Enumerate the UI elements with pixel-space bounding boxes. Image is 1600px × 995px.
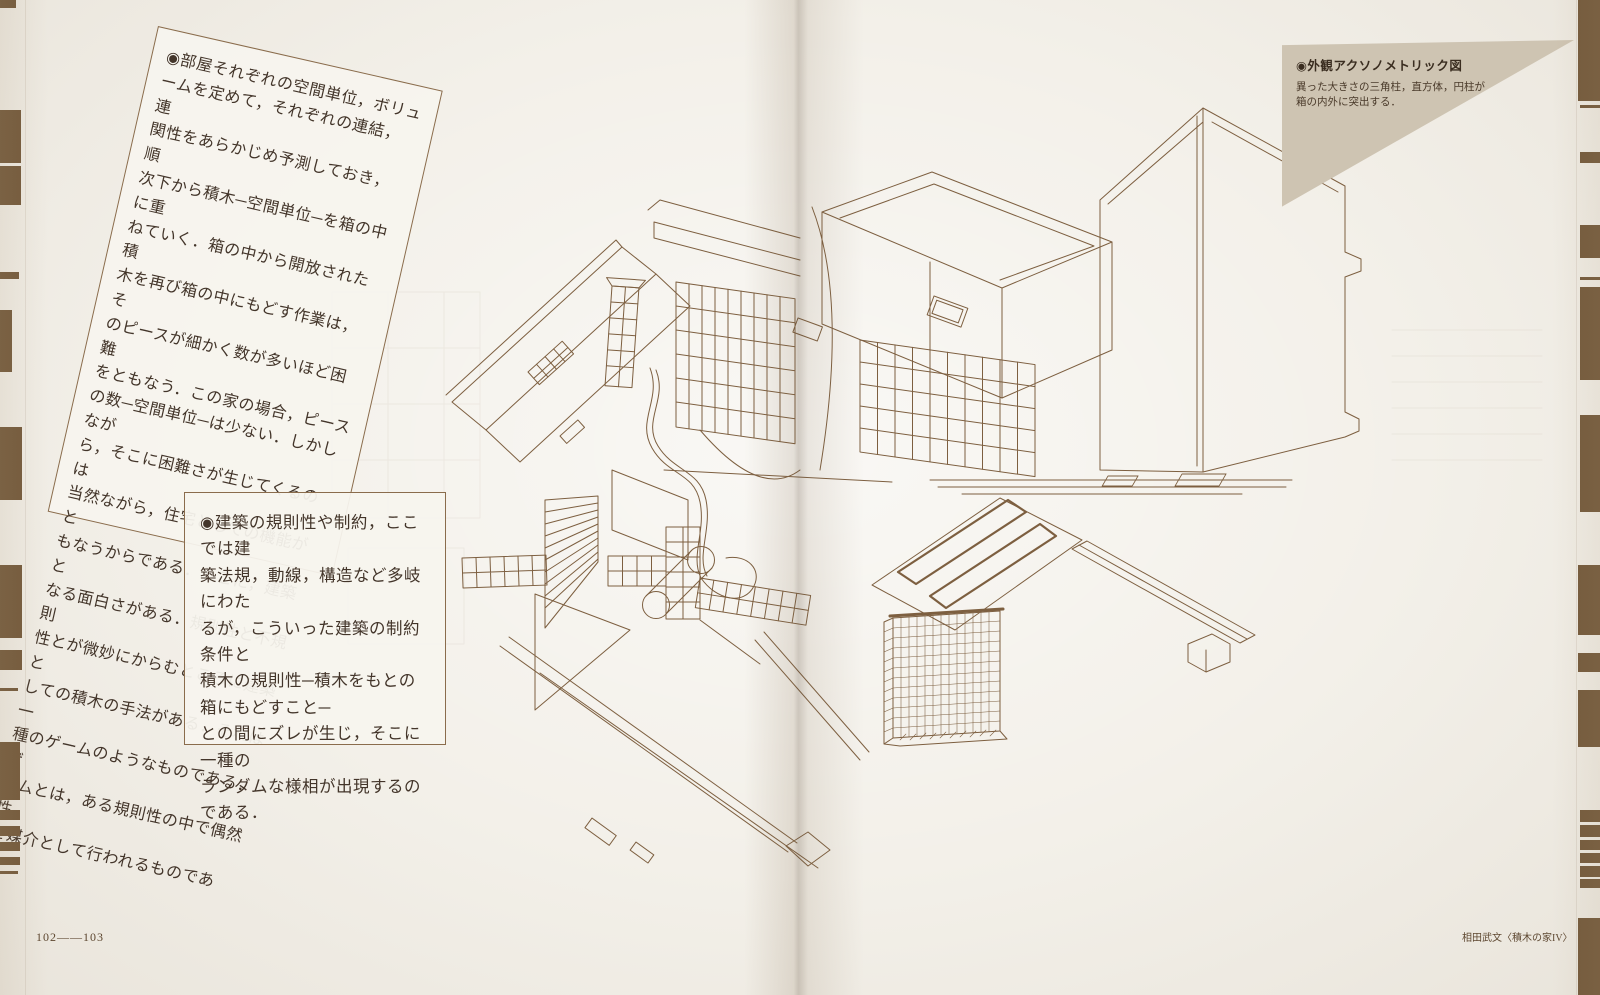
margin-note-boxed: ◉建築の規則性や制約，ここでは建 築法規，動線，構造など多岐にわた るが，こうい… <box>184 492 446 745</box>
figure-caption-body: 異った大きさの三角柱，直方体，円柱が 箱の内外に突出する． <box>1296 80 1511 110</box>
edge-stripe <box>1578 653 1600 672</box>
edge-stripe <box>1580 825 1600 837</box>
edge-stripe <box>1580 105 1600 108</box>
edge-stripe <box>0 166 21 205</box>
edge-stripe <box>0 310 12 372</box>
edge-stripe <box>0 427 22 500</box>
edge-stripe <box>1580 287 1600 380</box>
book-spread: ◉部屋それぞれの空間単位，ボリュ ームを定めて，それぞれの連結，連 関性をあらか… <box>0 0 1600 995</box>
edge-stripe <box>1580 879 1600 888</box>
credit-line: 相田武文〈積木の家IV〉 <box>1462 929 1573 944</box>
edge-stripe <box>0 110 21 163</box>
edge-stripe <box>1580 853 1600 863</box>
edge-stripe <box>1578 690 1600 747</box>
edge-stripe <box>1580 152 1600 163</box>
page-numbers: 102——103 <box>36 930 104 945</box>
edge-stripe <box>1578 0 1600 101</box>
edge-stripe <box>1580 840 1600 850</box>
figure-caption: ◉外観アクソノメトリック図 異った大きさの三角柱，直方体，円柱が 箱の内外に突出… <box>1296 55 1511 110</box>
edge-stripe <box>0 688 18 691</box>
edge-stripe <box>1578 565 1600 635</box>
edge-stripe <box>1580 415 1600 512</box>
edge-stripe <box>1580 277 1600 280</box>
book-edge-marks-right <box>1576 0 1600 995</box>
edge-stripe <box>1580 866 1600 877</box>
edge-stripe <box>1578 918 1600 995</box>
edge-stripe <box>1580 810 1600 822</box>
edge-stripe <box>0 565 22 638</box>
edge-stripe <box>0 0 16 8</box>
edge-stripe <box>0 650 22 670</box>
edge-stripe <box>1580 225 1600 258</box>
figure-caption-title: ◉外観アクソノメトリック図 <box>1296 55 1511 74</box>
edge-stripe <box>0 272 19 279</box>
